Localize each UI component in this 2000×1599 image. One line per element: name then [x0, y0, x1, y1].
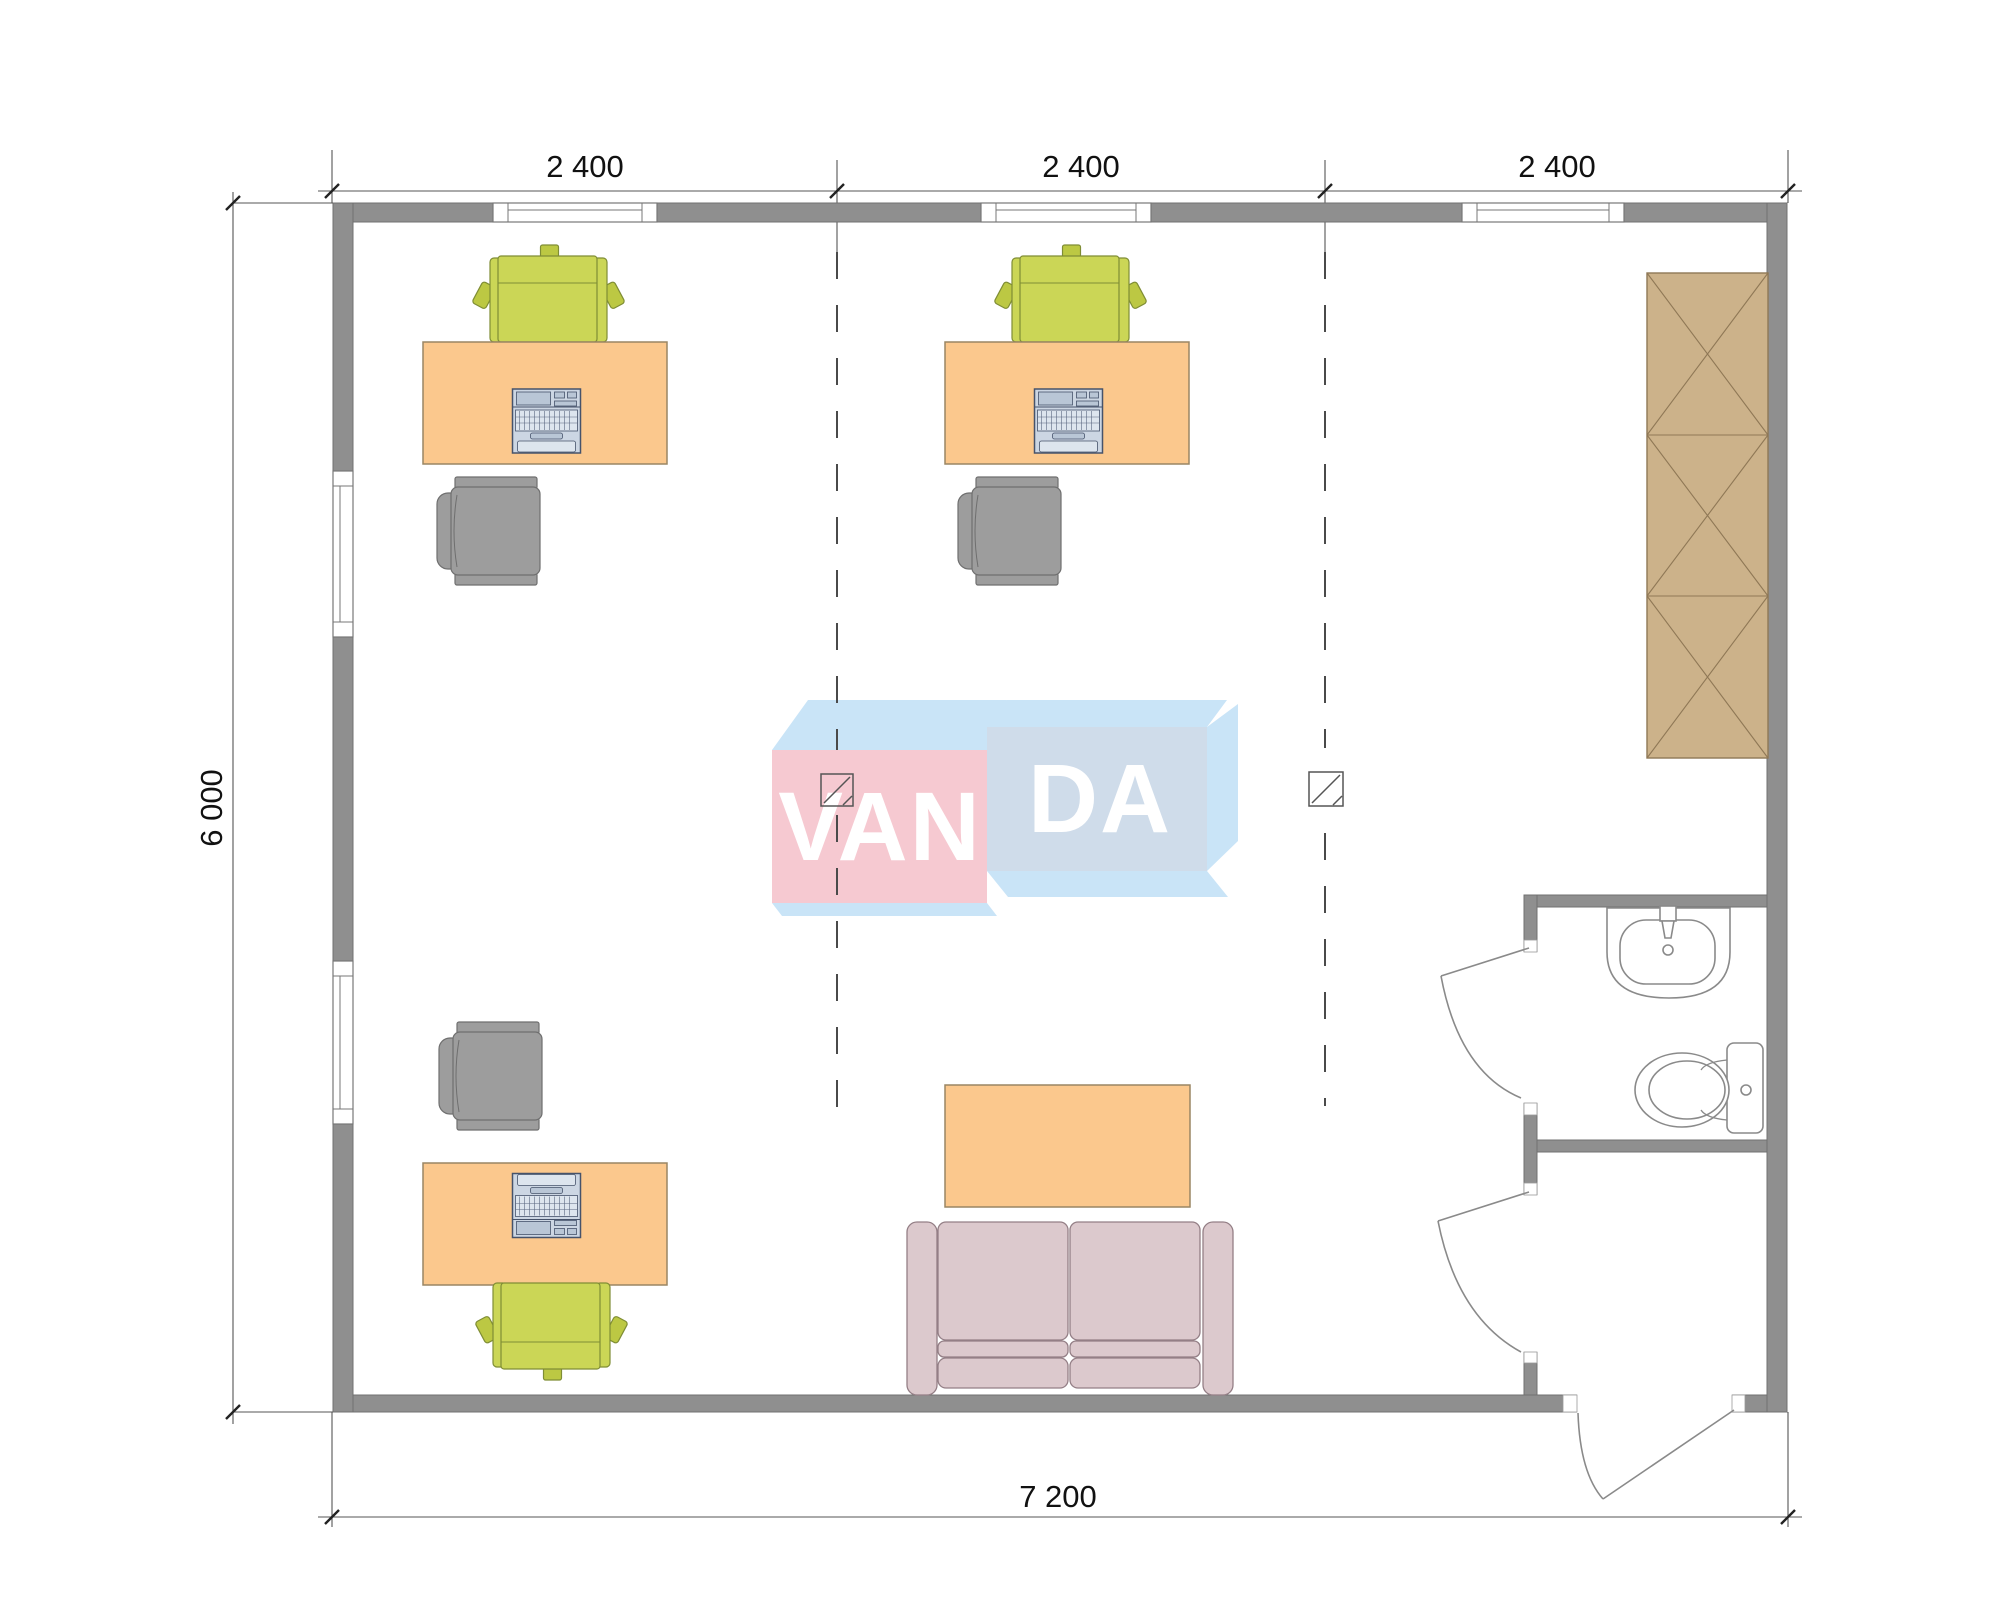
- wall-right: [1767, 203, 1787, 1412]
- dim-label-top-1: 2 400: [546, 149, 624, 184]
- watermark-flap-top-right: [987, 700, 1227, 727]
- watermark-flap-right: [1207, 704, 1238, 871]
- workstation-3: [423, 1022, 667, 1380]
- dim-label-left: 6 000: [194, 769, 229, 847]
- watermark-flap-bottom: [987, 871, 1228, 897]
- floor-plan-drawing: VAN DA: [0, 0, 2000, 1599]
- wc-wall-bottom: [1537, 1140, 1767, 1152]
- axis-marker-2: [1309, 772, 1343, 806]
- wall-left: [333, 203, 353, 1412]
- task-chair: [472, 245, 625, 342]
- laptop-icon: [513, 389, 581, 453]
- dimension-left: 6 000: [194, 192, 333, 1424]
- task-chair: [994, 245, 1147, 342]
- dim-label-bottom: 7 200: [1019, 1479, 1097, 1514]
- visitor-chair: [439, 1022, 542, 1130]
- vanda-watermark: VAN DA: [772, 700, 1238, 916]
- workstation-2: [945, 245, 1189, 585]
- workstation-1: [423, 245, 667, 585]
- laptop-icon: [1035, 389, 1103, 453]
- floor-plan-page: VAN DA: [0, 0, 2000, 1599]
- window-left-1: [333, 471, 353, 637]
- door-entry: [1578, 1410, 1734, 1499]
- toilet: [1635, 1043, 1763, 1133]
- dim-label-top-2: 2 400: [1042, 149, 1120, 184]
- dimension-top: 2 400 2 400 2 400: [318, 149, 1802, 203]
- door-hall: [1438, 1192, 1529, 1352]
- wardrobe: [1647, 273, 1768, 758]
- watermark-text-right: DA: [1028, 744, 1172, 853]
- window-left-2: [333, 961, 353, 1124]
- visitor-chair: [437, 477, 540, 585]
- task-chair: [475, 1283, 628, 1380]
- coffee-table: [945, 1085, 1190, 1207]
- window-top-2: [981, 203, 1151, 222]
- sink: [1607, 906, 1730, 998]
- wc-wall-top: [1524, 895, 1767, 907]
- sofa: [907, 1222, 1233, 1395]
- watermark-flap-bottom-left: [772, 903, 997, 916]
- laptop-icon: [513, 1174, 581, 1238]
- dim-label-top-3: 2 400: [1518, 149, 1596, 184]
- door-wc: [1441, 948, 1529, 1098]
- visitor-chair: [958, 477, 1061, 585]
- watermark-text-left: VAN: [778, 772, 982, 881]
- window-top-1: [493, 203, 657, 222]
- watermark-flap-top-left: [772, 700, 1007, 750]
- window-top-3: [1462, 203, 1624, 222]
